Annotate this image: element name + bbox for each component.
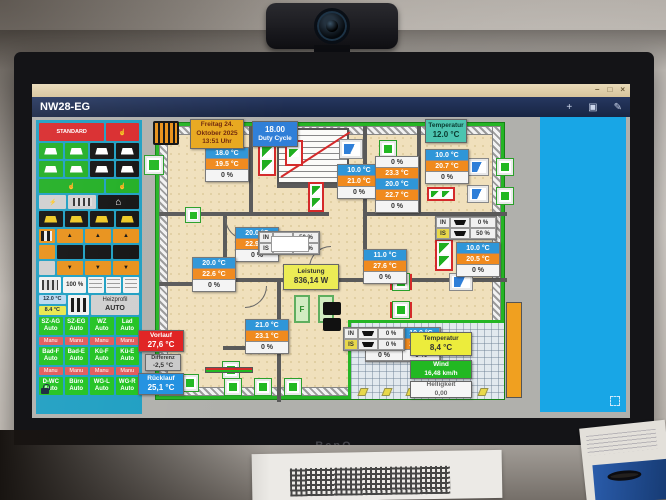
- heater-icon[interactable]: F: [294, 295, 310, 323]
- window-tilted-icon[interactable]: [258, 142, 276, 176]
- shutter-status-widget[interactable]: IN0 % IS50 %: [435, 216, 497, 240]
- zone-mode: Auto: [69, 356, 83, 364]
- zone-name: WG-R: [119, 379, 136, 387]
- zone-manu-button[interactable]: Manu: [39, 367, 63, 375]
- wind-label: Wind: [411, 361, 471, 369]
- shutter-is-percent: 50 %: [470, 228, 496, 239]
- blinds-icon[interactable]: [68, 195, 95, 209]
- date-line2: Oktober 2025: [191, 130, 243, 138]
- return-temp-display: Rücklauf 25,1 °C: [138, 373, 184, 395]
- window-closed-icon[interactable]: [497, 159, 513, 175]
- shutter-stop-button[interactable]: [85, 245, 111, 259]
- window-open-icon[interactable]: [340, 140, 362, 158]
- zone-manu-button[interactable]: Manu: [65, 367, 89, 375]
- zone-mode: Auto: [95, 386, 109, 394]
- zone-button-bad-e[interactable]: Bad-EAuto: [65, 347, 89, 365]
- heating-profile-label: Heizprofil: [102, 297, 127, 305]
- zone-name: Bad-F: [42, 349, 59, 357]
- zone-mode: Auto: [44, 356, 58, 364]
- blue-binder: [592, 459, 666, 500]
- zone-name: Bad-E: [68, 349, 85, 357]
- wc-fixture-icon: [323, 318, 341, 331]
- zone-mode: Auto: [69, 326, 83, 334]
- zone-mode: Auto: [95, 326, 109, 334]
- outdoor-temp-display: 12.0 °C: [39, 295, 66, 304]
- zone-mode: Auto: [69, 386, 83, 394]
- valve-percent: 0 %: [376, 157, 418, 168]
- control-sidebar: STANDARD ☝: [36, 120, 142, 414]
- return-value: 25,1 °C: [139, 383, 183, 393]
- outdoor-temp2-display: 8.4 °C: [39, 306, 66, 315]
- power-icon[interactable]: ⚡: [39, 195, 66, 209]
- zone-name: WG-L: [94, 379, 110, 387]
- energy-tile[interactable]: [88, 277, 104, 293]
- flow-temp-display: Vorlauf 27,6 °C: [138, 330, 184, 352]
- zone-mode: Auto: [120, 356, 134, 364]
- zone-manu-button[interactable]: Manu: [116, 337, 140, 345]
- zone-name: SZ-EG: [67, 319, 85, 327]
- webcam: [266, 3, 398, 49]
- room-climate-display[interactable]: 21.0 °C 23.1 °C 0 %: [245, 319, 289, 354]
- power-value: 836,14 W: [284, 276, 338, 286]
- radiator-icon[interactable]: [68, 295, 89, 315]
- brightness-label: Helligkeit: [411, 381, 471, 389]
- actual-temp: 20.7 °C: [426, 161, 468, 172]
- monitor: – □ × NW28-EG + ▣ ✎ STANDARD: [14, 52, 654, 466]
- window-closed-icon[interactable]: [182, 375, 198, 391]
- window-closed-icon[interactable]: [145, 156, 163, 174]
- zone-button-sz-eg[interactable]: SZ-EGAuto: [65, 317, 89, 335]
- brightness-value: 0,00: [411, 390, 471, 398]
- valve-percent: 0 %: [338, 187, 380, 198]
- zone-mode: Auto: [95, 356, 109, 364]
- setpoint-temp: 11.0 °C: [364, 250, 406, 261]
- lamp-button[interactable]: [65, 211, 89, 227]
- setpoint-temp: 20.0 °C: [193, 258, 235, 269]
- duty-cycle-display: 18.00 Duty Cycle: [252, 121, 298, 147]
- duty-cycle-label: Duty Cycle: [253, 135, 297, 143]
- power-label: Leistung: [284, 268, 338, 276]
- shutter-group-icon[interactable]: [39, 229, 55, 243]
- valve-percent: 0 %: [426, 172, 468, 183]
- lamp-button[interactable]: [90, 211, 114, 227]
- date-display: Freitag 24. Oktober 2025 13:51 Uhr: [190, 119, 244, 149]
- shutter-in-percent: 0 %: [470, 217, 496, 228]
- zone-mode: Auto: [44, 326, 58, 334]
- window-sill-status: [205, 367, 253, 373]
- zone-name: Büro: [69, 379, 83, 387]
- fullscreen-icon[interactable]: [610, 396, 620, 406]
- zone-manu-button[interactable]: Manu: [90, 337, 114, 345]
- zone-name: Kü-F: [95, 349, 109, 357]
- zone-manu-button[interactable]: Manu: [39, 337, 63, 345]
- diff-value: -2,5 °C: [146, 362, 180, 370]
- zone-manu-button[interactable]: Manu: [116, 367, 140, 375]
- zone-name: WZ: [97, 319, 106, 327]
- window-closed-icon[interactable]: [186, 208, 200, 222]
- save-icon[interactable]: ▣: [588, 102, 597, 113]
- shutter-up-button[interactable]: ▲: [57, 229, 83, 243]
- zone-manu-button[interactable]: Manu: [65, 337, 89, 345]
- valve-percent: 0 %: [364, 272, 406, 283]
- valve-percent: 0 %: [366, 350, 403, 361]
- lights-off-scene-button[interactable]: [90, 161, 114, 177]
- webcam-lens: [314, 8, 350, 44]
- side-panel: [540, 117, 626, 412]
- shutter-stop-button[interactable]: [57, 245, 83, 259]
- valve-percent: 0 %: [246, 342, 288, 353]
- zone-button-wg-l[interactable]: WG-LAuto: [90, 377, 114, 395]
- window-closed-icon[interactable]: [225, 379, 241, 395]
- diff-temp-display: Differenz -2,5 °C: [145, 354, 181, 371]
- shutter-in-tag: IN: [436, 217, 450, 228]
- room-climate-display[interactable]: 11.0 °C 27.6 °C 0 %: [363, 249, 407, 284]
- window-closed-icon[interactable]: [380, 141, 396, 157]
- awning-icon: [358, 339, 378, 350]
- zone-name: SZ-AG: [41, 319, 60, 327]
- setpoint-temp: 10.0 °C: [457, 243, 499, 254]
- room-climate-display[interactable]: 20.0 °C 22.6 °C 0 %: [192, 257, 236, 292]
- return-label: Rücklauf: [139, 375, 183, 383]
- shutter-down-button[interactable]: ▼: [57, 261, 83, 275]
- window-closed-icon[interactable]: [497, 188, 513, 204]
- app-header: NW28-EG + ▣ ✎: [32, 97, 630, 117]
- screen: – □ × NW28-EG + ▣ ✎ STANDARD: [32, 84, 630, 418]
- shutter-status-widget[interactable]: IN0 % IS0 %: [343, 327, 405, 351]
- setpoint-temp: 18.0 °C: [206, 148, 248, 159]
- actual-temp: 27.6 °C: [364, 261, 406, 272]
- valve-percent: 0 %: [193, 280, 235, 291]
- awning-icon: [358, 328, 378, 339]
- close-icon[interactable]: ×: [620, 85, 625, 94]
- actual-temp: 23.3 °C: [376, 168, 418, 179]
- shutter-stop-button[interactable]: [39, 245, 55, 259]
- manual-hand-button[interactable]: ☝: [39, 179, 104, 193]
- energy-tile[interactable]: [123, 277, 139, 293]
- terrace-lamp-icon[interactable]: [381, 388, 392, 396]
- actual-temp: 19.5 °C: [206, 159, 248, 170]
- terrace-lamp-icon[interactable]: [357, 388, 368, 396]
- blind-percent-display: 100 %: [63, 277, 85, 293]
- window-open-icon[interactable]: [468, 159, 488, 175]
- lights-off-scene-button[interactable]: [90, 143, 114, 159]
- actual-temp: 21.0 °C: [338, 176, 380, 187]
- lock-icon: [41, 388, 49, 394]
- window-closed-icon[interactable]: [393, 302, 409, 318]
- awning-strip: [506, 302, 522, 398]
- room-climate-display[interactable]: 18.0 °C 19.5 °C 0 %: [205, 147, 249, 182]
- shutter-up-button[interactable]: ▲: [113, 229, 139, 243]
- terrace-lamp-icon[interactable]: [477, 388, 488, 396]
- duty-cycle-value: 18.00: [253, 125, 297, 135]
- zone-button-kue-f[interactable]: Kü-FAuto: [90, 347, 114, 365]
- window-tilted-icon[interactable]: [435, 239, 453, 271]
- room-climate-stack[interactable]: 0 % 23.3 °C 20.0 °C 22.7 °C 0 %: [375, 156, 419, 213]
- maximize-icon[interactable]: □: [607, 85, 612, 94]
- lights-off-scene-button[interactable]: [116, 143, 140, 159]
- zone-name: Lad: [122, 319, 133, 327]
- shutter-up-button[interactable]: ▲: [85, 229, 111, 243]
- shutter-group-icon[interactable]: [39, 261, 55, 275]
- actual-temp: 23.1 °C: [246, 331, 288, 342]
- shutter-is-tag: IS: [344, 339, 358, 350]
- lamp-button[interactable]: [39, 211, 63, 227]
- desk-shadow: [0, 430, 270, 500]
- lights-on-scene-button[interactable]: [39, 143, 63, 159]
- minimize-icon[interactable]: –: [595, 85, 599, 94]
- shutter-down-button[interactable]: ▼: [113, 261, 139, 275]
- photo-of-monitor: – □ × NW28-EG + ▣ ✎ STANDARD: [0, 0, 666, 500]
- shutter-in-percent: 0 %: [378, 328, 404, 339]
- shutter-stop-button[interactable]: [113, 245, 139, 259]
- energy-tile[interactable]: [106, 277, 122, 293]
- window-closed-icon[interactable]: [255, 379, 271, 395]
- outdoor-temperature-display: Temperatur 12.0 °C: [425, 119, 467, 143]
- time-line: 13:51 Uhr: [191, 138, 243, 146]
- setpoint-temp: 21.0 °C: [246, 320, 288, 331]
- zone-button-kue-e[interactable]: Kü-EAuto: [116, 347, 140, 365]
- weather-temp-display: Temperatur 8,4 °C: [410, 332, 472, 356]
- setpoint-temp: 10.0 °C: [426, 150, 468, 161]
- zone-mode: Auto: [120, 386, 134, 394]
- outdoor-temp-label: Temperatur: [426, 122, 466, 130]
- diff-label: Differenz: [146, 355, 180, 362]
- interior-wall: [159, 212, 329, 216]
- valve-percent: 0 %: [457, 265, 499, 276]
- visu-canvas: STANDARD ☝: [32, 117, 630, 418]
- zone-manu-button[interactable]: Manu: [90, 367, 114, 375]
- printed-pattern: [290, 466, 450, 497]
- awning-icon: [450, 217, 470, 228]
- date-line1: Freitag 24.: [191, 121, 243, 129]
- alarm-hand-button[interactable]: ☝: [106, 123, 139, 141]
- heating-profile-button[interactable]: Heizprofil AUTO: [91, 295, 139, 315]
- zone-button-wg-r[interactable]: WG-RAuto: [116, 377, 140, 395]
- manual-hand-button[interactable]: ☝: [106, 179, 139, 193]
- zone-button-bad-f[interactable]: Bad-FAuto: [39, 347, 63, 365]
- zone-name: Kü-E: [120, 349, 134, 357]
- flow-label: Vorlauf: [139, 332, 183, 340]
- actual-temp: 22.6 °C: [193, 269, 235, 280]
- shutter-down-button[interactable]: ▼: [85, 261, 111, 275]
- window-open-icon[interactable]: [468, 186, 488, 202]
- zone-mode: Auto: [120, 326, 134, 334]
- outdoor-temp-value: 12.0 °C: [426, 130, 466, 140]
- house-icon[interactable]: ⌂: [98, 195, 139, 209]
- page-title: NW28-EG: [40, 97, 90, 117]
- lights-off-scene-button[interactable]: [116, 161, 140, 177]
- awning-icon: [450, 228, 470, 239]
- zone-button-sz-ag[interactable]: SZ-AGAuto: [39, 317, 63, 335]
- window-tilted-icon[interactable]: [427, 187, 455, 201]
- door-swing: [245, 286, 267, 308]
- heating-profile-value: AUTO: [105, 304, 125, 313]
- brightness-display: Helligkeit 0,00: [410, 381, 472, 398]
- window-icon: [273, 243, 293, 254]
- radiator-icon[interactable]: [153, 121, 179, 145]
- shutter-in-tag: IN: [344, 328, 358, 339]
- weather-temp-label: Temperatur: [411, 335, 471, 343]
- lights-on-scene-button[interactable]: [65, 143, 89, 159]
- blind-position-icon[interactable]: [39, 277, 61, 293]
- zone-button-buero[interactable]: BüroAuto: [65, 377, 89, 395]
- flow-value: 27,6 °C: [139, 340, 183, 350]
- window-closed-icon[interactable]: [285, 379, 301, 395]
- room-climate-display[interactable]: 10.0 °C 20.7 °C 0 %: [425, 149, 469, 184]
- actual-temp: 22.7 °C: [376, 190, 418, 201]
- shutter-is-percent: 0 %: [378, 339, 404, 350]
- room-climate-display[interactable]: 10.0 °C 20.5 °C 0 %: [456, 242, 500, 277]
- window-titlebar: – □ ×: [32, 84, 630, 97]
- scene-standard-button[interactable]: STANDARD: [39, 123, 104, 141]
- valve-percent: 0 %: [376, 201, 418, 212]
- lights-on-scene-button[interactable]: [39, 161, 63, 177]
- binder-ring: [607, 469, 642, 482]
- zone-button-wz[interactable]: WZAuto: [90, 317, 114, 335]
- wind-value: 16,48 km/h: [411, 370, 471, 378]
- printed-paper: [252, 450, 503, 500]
- zone-button-lad[interactable]: LadAuto: [116, 317, 140, 335]
- wc-fixture-icon: [323, 302, 341, 315]
- window-tilted-icon[interactable]: [308, 182, 324, 212]
- valve-percent: 0 %: [206, 170, 248, 181]
- shutter-status-widget[interactable]: IN50 % IS50 %: [258, 231, 320, 255]
- power-display: Leistung 836,14 W: [283, 264, 339, 290]
- weather-temp-value: 8,4 °C: [411, 343, 471, 353]
- wind-display: Wind 16,48 km/h: [410, 360, 472, 379]
- add-icon[interactable]: +: [566, 102, 572, 113]
- edit-icon[interactable]: ✎: [614, 102, 622, 113]
- shutter-is-tag: IS: [436, 228, 450, 239]
- setpoint-temp: 20.0 °C: [376, 179, 418, 190]
- lights-on-scene-button[interactable]: [65, 161, 89, 177]
- actual-temp: 20.5 °C: [457, 254, 499, 265]
- setpoint-temp: 10.0 °C: [338, 165, 380, 176]
- lamp-button[interactable]: [116, 211, 140, 227]
